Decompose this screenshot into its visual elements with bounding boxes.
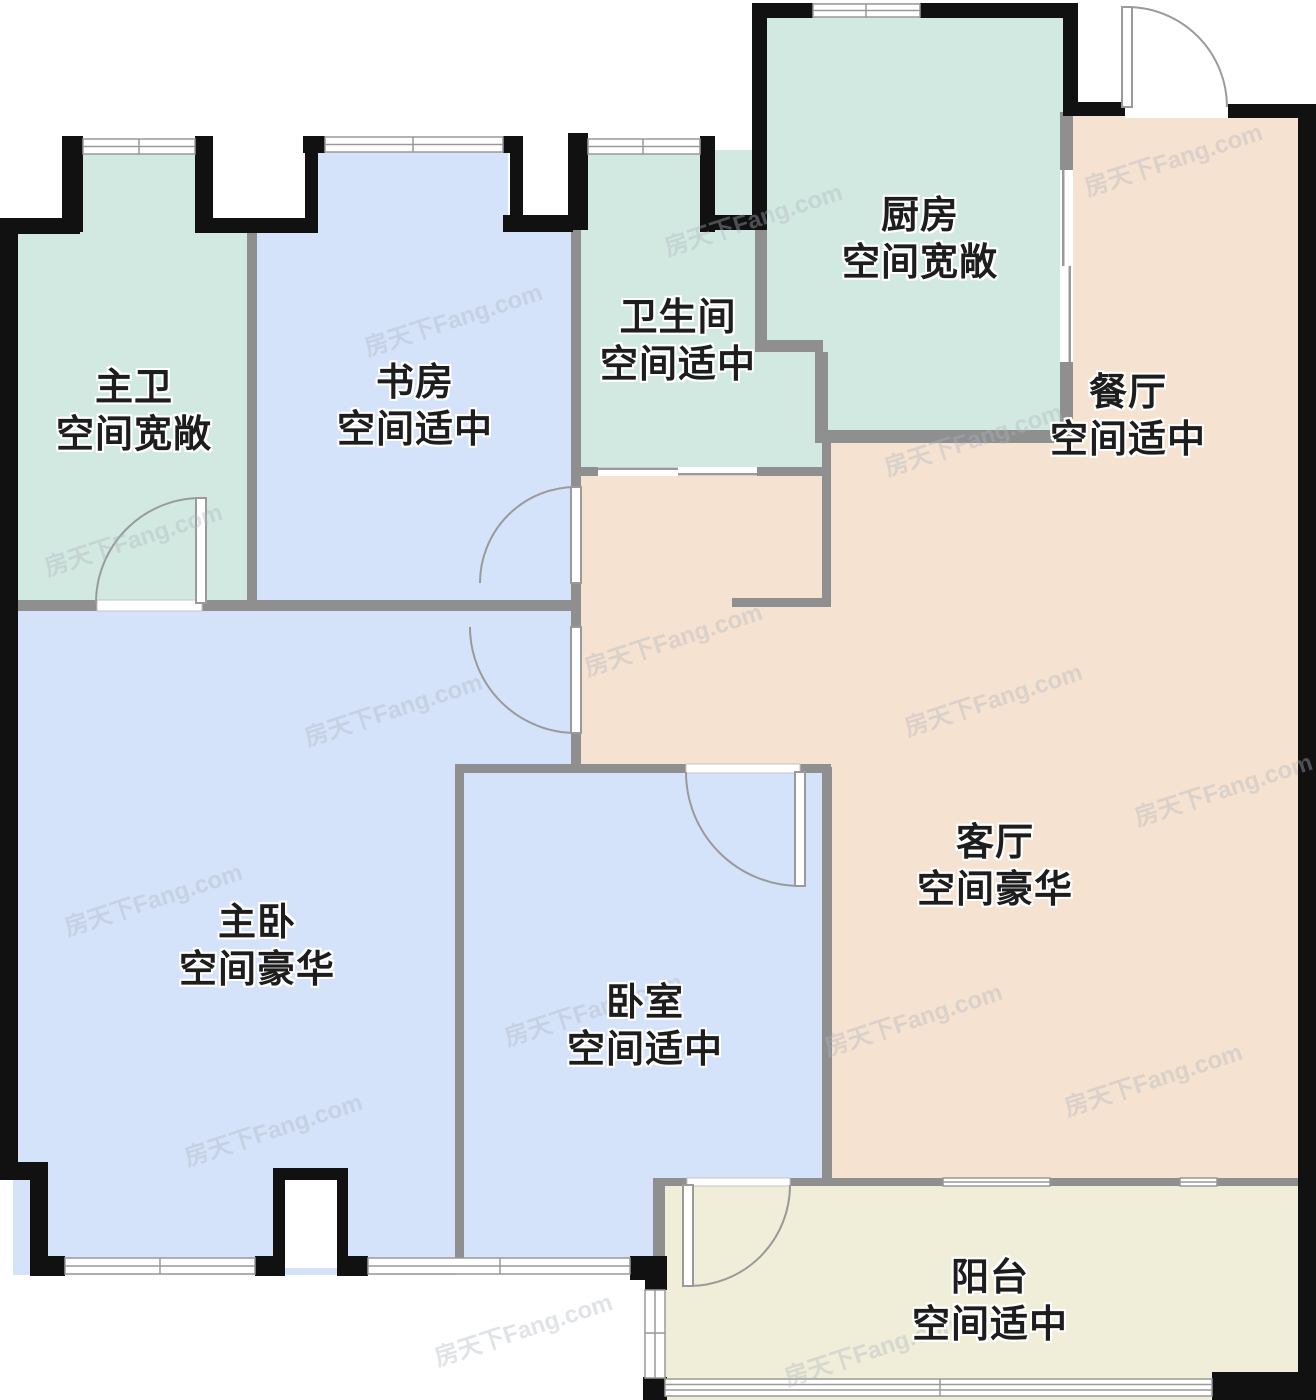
window-study xyxy=(325,137,503,152)
wall-segment xyxy=(1212,1372,1316,1400)
room-label-balcony: 阳台 空间适中 xyxy=(912,1255,1068,1349)
wall-segment xyxy=(822,443,831,607)
wall-segment xyxy=(195,136,213,232)
window-kitchen xyxy=(813,4,920,17)
wall-segment xyxy=(571,732,581,767)
room-size-desc: 空间适中 xyxy=(337,407,493,454)
wall-segment xyxy=(1063,3,1078,113)
wall-segment xyxy=(822,767,832,1185)
window-frame xyxy=(665,1379,1212,1396)
wall-segment xyxy=(247,228,257,610)
wall-segment xyxy=(1298,104,1316,1400)
wall-segment xyxy=(755,340,823,352)
room-label-living: 客厅 空间豪华 xyxy=(917,820,1073,914)
wall-segment xyxy=(202,600,580,611)
room-size-desc: 空间宽敞 xyxy=(842,240,998,287)
room-label-study: 书房 空间适中 xyxy=(337,360,493,454)
room-size-desc: 空间适中 xyxy=(600,342,756,389)
room-name: 客厅 xyxy=(917,820,1073,867)
wall-segment xyxy=(568,133,588,230)
sliding-door-panel xyxy=(678,473,757,476)
room-name: 书房 xyxy=(337,360,493,407)
room-label-master-bedroom: 主卧 空间豪华 xyxy=(179,900,335,994)
sliding-door-bathroom xyxy=(598,467,757,476)
wall-segment xyxy=(0,218,18,1168)
door-opening xyxy=(687,1178,790,1186)
door-leaf-master-bath xyxy=(196,498,206,603)
wall-segment xyxy=(195,218,318,233)
door-leaf-master-bedroom xyxy=(571,627,581,733)
room-label-bathroom: 卫生间 空间适中 xyxy=(600,295,756,389)
sliding-door-gap xyxy=(1060,170,1073,362)
door-leaf-study xyxy=(571,487,581,583)
room-name: 厨房 xyxy=(842,193,998,240)
wall-segment xyxy=(755,228,767,352)
room-name: 餐厅 xyxy=(1050,370,1206,417)
room-fill-living xyxy=(828,443,1316,1185)
wall-segment xyxy=(571,225,581,487)
wall-segment xyxy=(305,150,318,232)
wall-segment xyxy=(757,467,831,476)
door-opening xyxy=(686,764,800,773)
window-balcony-bottom xyxy=(665,1379,1212,1396)
room-fill-master-bedroom-upper xyxy=(455,610,580,767)
wall-segment xyxy=(13,600,97,611)
wall-segment xyxy=(48,1256,65,1276)
room-size-desc: 空间宽敞 xyxy=(56,412,212,459)
wall-segment xyxy=(273,1168,348,1180)
wall-segment xyxy=(1217,1178,1300,1186)
door-leaf-balcony xyxy=(683,1185,693,1286)
room-name: 卧室 xyxy=(567,980,723,1027)
wall-segment xyxy=(815,352,828,443)
sliding-door-kitchen xyxy=(1060,170,1073,362)
wall-segment xyxy=(653,1185,665,1260)
door-opening xyxy=(97,600,202,611)
wall-segment xyxy=(455,764,464,1258)
room-size-desc: 空间豪华 xyxy=(917,867,1073,914)
room-fill-master-bath-bay xyxy=(78,150,200,240)
window-bedroom-bottom xyxy=(368,1258,630,1274)
wall-segment xyxy=(503,215,573,232)
door-opening-entrance xyxy=(1125,100,1228,118)
wall-segment xyxy=(643,1377,667,1400)
wall-segment xyxy=(455,764,686,773)
exterior-notch xyxy=(285,1168,337,1268)
window-master-bedroom-left xyxy=(65,1258,255,1274)
wall-segment xyxy=(732,598,831,607)
wall-segment xyxy=(1063,102,1125,116)
wall-segment xyxy=(571,583,581,627)
wall-segment xyxy=(815,430,1060,443)
door-leaf-bedroom xyxy=(795,772,805,886)
wall-segment xyxy=(790,1178,943,1186)
room-label-dining: 餐厅 空间适中 xyxy=(1050,370,1206,464)
window-living-bottom-right xyxy=(1180,1178,1217,1186)
window-bathroom xyxy=(588,139,700,154)
room-name: 卫生间 xyxy=(600,295,756,342)
wall-segment xyxy=(575,467,598,476)
floorplan-page: 房天下Fang.com 房天下Fang.com 房天下Fang.com 房天下F… xyxy=(0,0,1316,1400)
door-arc-entrance xyxy=(1127,7,1227,107)
room-fill-study-bay xyxy=(318,150,508,235)
window-balcony-left xyxy=(645,1290,665,1378)
sliding-door-panel xyxy=(598,468,678,471)
room-name: 主卧 xyxy=(179,900,335,947)
door-leaf-entrance xyxy=(1122,7,1132,107)
room-name: 主卫 xyxy=(56,365,212,412)
room-name: 阳台 xyxy=(912,1255,1068,1302)
wall-segment xyxy=(273,1168,285,1276)
sliding-door-panel xyxy=(1062,170,1065,266)
wall-segment xyxy=(1060,112,1073,170)
floorplan-drawing xyxy=(0,0,1316,1400)
wall-segment xyxy=(630,1256,655,1280)
wall-segment xyxy=(337,1168,348,1276)
room-size-desc: 空间适中 xyxy=(912,1302,1068,1349)
wall-segment xyxy=(653,1178,687,1186)
room-fill-hallway xyxy=(575,476,828,767)
room-label-master-bath: 主卫 空间宽敞 xyxy=(56,365,212,459)
wall-segment xyxy=(62,136,83,232)
wall-segment xyxy=(752,3,813,18)
wall-segment xyxy=(1050,1178,1180,1186)
wall-segment xyxy=(752,3,767,230)
room-size-desc: 空间豪华 xyxy=(179,947,335,994)
room-size-desc: 空间适中 xyxy=(1050,417,1206,464)
window-living-bottom xyxy=(943,1178,1050,1186)
wall-segment xyxy=(920,3,1078,18)
sliding-door-panel xyxy=(1069,266,1072,362)
room-label-kitchen: 厨房 空间宽敞 xyxy=(842,193,998,287)
room-label-bedroom: 卧室 空间适中 xyxy=(567,980,723,1074)
room-size-desc: 空间适中 xyxy=(567,1027,723,1074)
window-master-bath xyxy=(83,139,195,154)
wall-segment xyxy=(30,1168,48,1276)
